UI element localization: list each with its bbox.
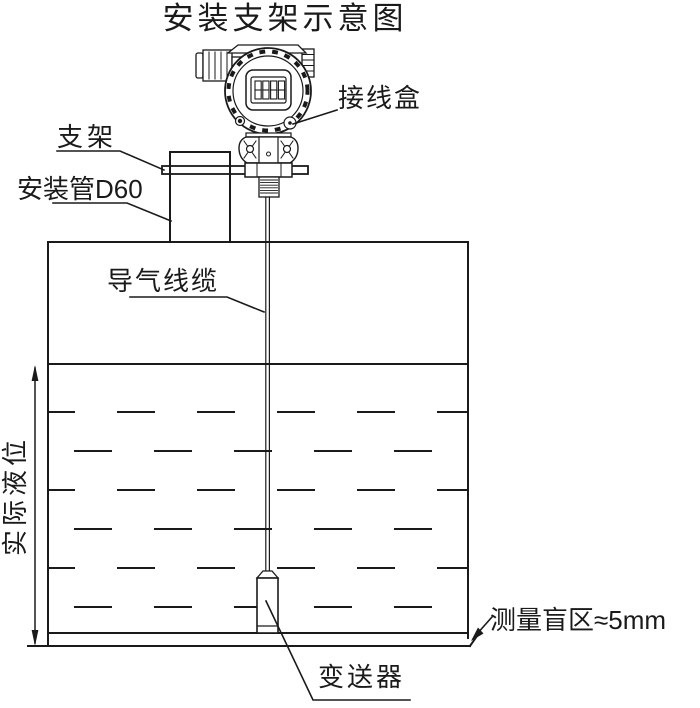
junction-box-label: 接线盒	[338, 85, 422, 112]
blind-zone-label: 测量盲区≈5mm	[490, 607, 666, 634]
thread-stub	[259, 177, 279, 197]
bracket-leader	[57, 151, 164, 170]
display-window	[246, 70, 291, 110]
left-screw-dot	[238, 119, 242, 123]
mounting-pipe-label: 安装管D60	[17, 176, 143, 203]
air-guide-cable	[266, 197, 270, 572]
mounting-yoke	[239, 133, 298, 163]
probe-transmitter	[257, 571, 278, 633]
liquid	[48, 364, 468, 607]
installation-diagram: 安装支架示意图 接线盒 支架 安装管D60 导气线缆 实际液位 测量盲区≈5mm…	[0, 0, 700, 708]
tank-outline	[28, 242, 477, 646]
transmitter-label: 变送器	[318, 664, 405, 691]
hex-flange	[245, 163, 292, 177]
diagram-title: 安装支架示意图	[150, 3, 420, 36]
dimension-arrow-up	[32, 365, 39, 381]
level-dimension	[32, 365, 39, 646]
air-cable-leader	[130, 297, 264, 312]
actual-level-label: 实际液位	[2, 430, 30, 562]
bracket-label: 支架	[57, 124, 117, 151]
right-bolt-dot	[288, 121, 292, 125]
dimension-arrow-down	[32, 630, 39, 646]
air-cable-label: 导气线缆	[107, 268, 219, 295]
mounting-pipe-leader	[53, 203, 171, 221]
